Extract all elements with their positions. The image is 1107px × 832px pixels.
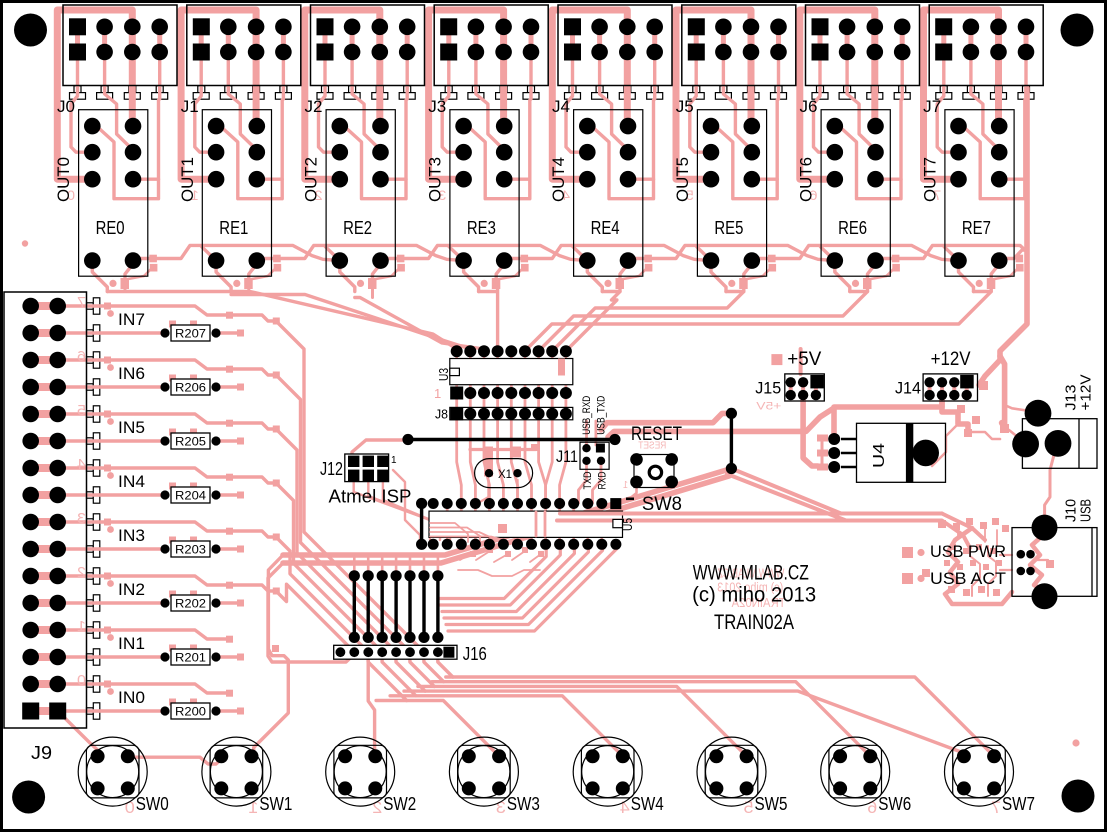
svg-text:IN4: IN4 <box>118 472 145 491</box>
svg-text:J8: J8 <box>435 407 448 422</box>
svg-text:RXD: RXD <box>597 471 609 489</box>
svg-text:IN2: IN2 <box>118 580 145 599</box>
svg-text:1: 1 <box>434 386 441 401</box>
svg-text:+5V: +5V <box>755 400 781 412</box>
svg-text:IN6: IN6 <box>118 364 145 383</box>
svg-text:1: 1 <box>391 455 397 466</box>
svg-text:3: 3 <box>77 510 86 527</box>
svg-text:SW5: SW5 <box>755 794 788 814</box>
svg-text:OUT2: OUT2 <box>302 157 321 202</box>
svg-text:R206: R206 <box>175 383 206 395</box>
svg-text:SW4: SW4 <box>631 794 664 814</box>
svg-text:4: 4 <box>620 798 630 817</box>
svg-text:J2: J2 <box>305 97 323 116</box>
svg-text:RE5: RE5 <box>714 218 743 238</box>
svg-text:OUT7: OUT7 <box>920 157 939 202</box>
svg-text:RE7: RE7 <box>962 218 991 238</box>
svg-text:J4: J4 <box>552 97 570 116</box>
svg-text:Atmel ISP: Atmel ISP <box>329 487 412 507</box>
svg-text:R203: R203 <box>175 545 206 557</box>
svg-text:J12: J12 <box>320 459 343 479</box>
svg-text:SW1: SW1 <box>259 794 292 814</box>
svg-text:J9: J9 <box>31 743 52 763</box>
svg-text:1: 1 <box>623 480 628 491</box>
svg-text:OUT5: OUT5 <box>673 157 692 202</box>
svg-text:OUT6: OUT6 <box>797 157 816 202</box>
svg-text:0: 0 <box>125 798 135 817</box>
svg-text:OUT3: OUT3 <box>425 157 444 202</box>
svg-text:6: 6 <box>77 348 86 365</box>
svg-text:OUT1: OUT1 <box>178 157 197 202</box>
svg-text:IN1: IN1 <box>118 634 145 653</box>
svg-text:+12V: +12V <box>1078 375 1095 411</box>
svg-text:J7: J7 <box>923 97 941 116</box>
svg-text:OUT4: OUT4 <box>549 157 568 202</box>
svg-text:R202: R202 <box>175 599 206 611</box>
svg-text:2: 2 <box>372 798 382 817</box>
svg-text:SW0: SW0 <box>136 794 169 814</box>
svg-text:R201: R201 <box>175 653 206 665</box>
svg-text:RESET: RESET <box>631 424 682 445</box>
svg-text:U5: U5 <box>620 518 635 531</box>
svg-text:RE1: RE1 <box>219 218 248 238</box>
svg-text:IN5: IN5 <box>118 418 145 437</box>
svg-text:J3: J3 <box>428 97 446 116</box>
svg-text:0: 0 <box>77 672 86 689</box>
svg-text:2: 2 <box>77 564 86 581</box>
svg-text:SW3: SW3 <box>507 794 540 814</box>
svg-text:RE2: RE2 <box>343 218 372 238</box>
svg-text:1: 1 <box>248 798 258 817</box>
svg-text:WWW.MLAB.CZ: WWW.MLAB.CZ <box>693 562 809 585</box>
svg-text:7: 7 <box>991 798 1001 817</box>
svg-text:+5V: +5V <box>787 349 821 370</box>
svg-text:J6: J6 <box>800 97 818 116</box>
svg-text:1: 1 <box>77 618 86 635</box>
svg-text:SW7: SW7 <box>1002 794 1035 814</box>
svg-text:4: 4 <box>77 456 86 473</box>
svg-text:R200: R200 <box>175 707 206 719</box>
svg-text:USB ACT: USB ACT <box>930 569 1006 588</box>
svg-text:USB: USB <box>1078 499 1095 522</box>
svg-text:RE3: RE3 <box>467 218 496 238</box>
svg-text:R205: R205 <box>175 437 206 449</box>
svg-text:+12V: +12V <box>931 349 971 370</box>
svg-text:RE0: RE0 <box>96 218 125 238</box>
svg-text:J15: J15 <box>755 379 781 398</box>
svg-text:RE6: RE6 <box>838 218 867 238</box>
svg-text:OUT0: OUT0 <box>54 157 73 202</box>
svg-text:R207: R207 <box>175 329 206 341</box>
svg-text:J16: J16 <box>463 644 487 664</box>
svg-text:IN3: IN3 <box>118 526 145 545</box>
svg-text:USB_RXD: USB_RXD <box>581 396 593 435</box>
svg-text:TRAIN02A: TRAIN02A <box>714 611 794 634</box>
svg-text:(c) miho 2013: (c) miho 2013 <box>692 584 816 607</box>
svg-text:USB_TXD: USB_TXD <box>596 396 608 435</box>
svg-text:7: 7 <box>77 294 86 311</box>
svg-text:TXD: TXD <box>582 471 594 489</box>
svg-text:USB PWR: USB PWR <box>930 542 1006 561</box>
svg-text:J0: J0 <box>57 97 75 116</box>
svg-text:U4: U4 <box>871 443 888 468</box>
svg-text:U3: U3 <box>436 368 451 381</box>
svg-text:J5: J5 <box>676 97 694 116</box>
svg-text:J11: J11 <box>556 447 578 466</box>
svg-text:SW2: SW2 <box>383 794 416 814</box>
svg-text:5: 5 <box>77 402 86 419</box>
svg-text:X1: X1 <box>498 467 512 481</box>
svg-text:R204: R204 <box>175 491 207 503</box>
svg-text:J1: J1 <box>181 97 199 116</box>
svg-text:6: 6 <box>867 798 877 817</box>
svg-text:3: 3 <box>496 798 506 817</box>
svg-text:RE4: RE4 <box>591 218 620 238</box>
svg-text:IN7: IN7 <box>118 310 145 329</box>
svg-text:IN0: IN0 <box>118 688 145 707</box>
svg-text:SW6: SW6 <box>878 794 911 814</box>
svg-text:J14: J14 <box>895 379 921 398</box>
svg-text:5: 5 <box>744 798 754 817</box>
